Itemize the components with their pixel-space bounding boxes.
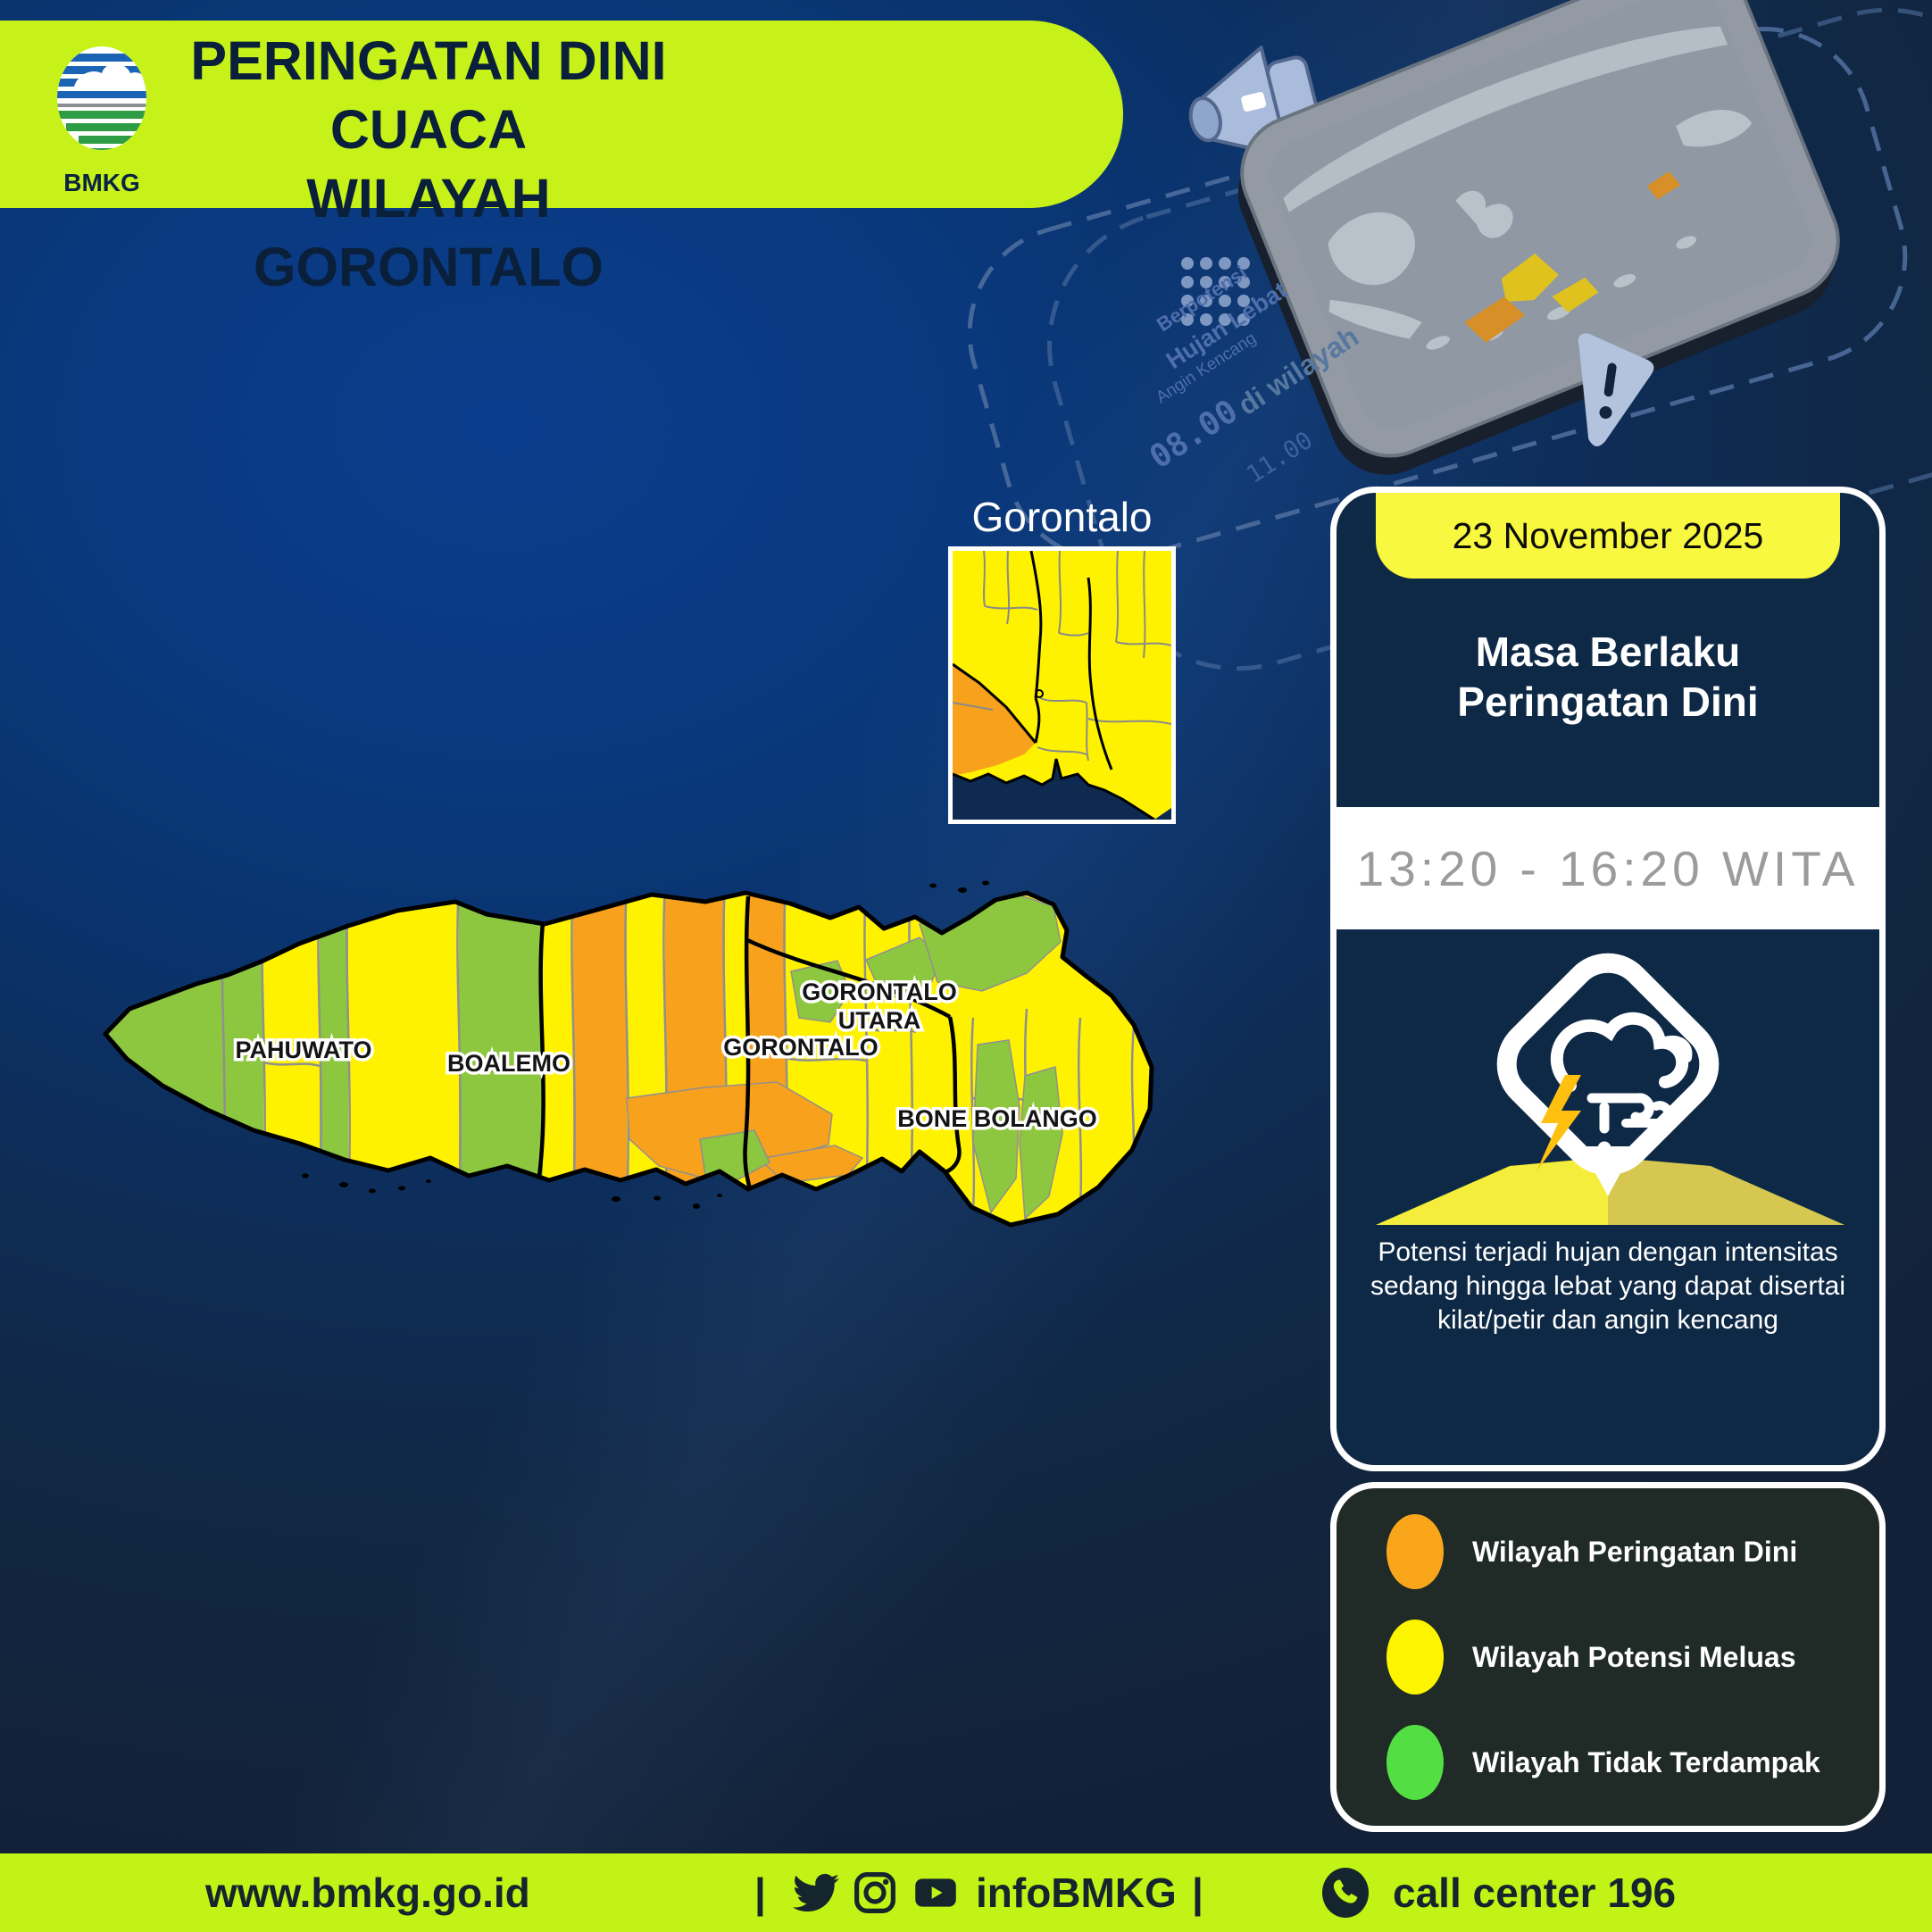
footer-separator: |	[754, 1853, 766, 1932]
validity-time: 13:20 - 16:20 WITA	[1330, 807, 1886, 929]
map-label-bone-bolango: BONE BOLANGO	[897, 1105, 1097, 1132]
legend-item-potential: Wilayah Potensi Meluas	[1385, 1619, 1861, 1695]
footer-bar: www.bmkg.go.id | infoBMKG | call cen	[0, 1853, 1932, 1932]
page-title-line2: WILAYAH GORONTALO	[152, 164, 705, 302]
phone-icon	[1320, 1867, 1371, 1919]
legend-swatch-unaffected	[1385, 1724, 1445, 1801]
poster: Berpotensi Hujan Lebat Angin Kencang di …	[0, 0, 1932, 1932]
inset-map-title: Gorontalo	[948, 493, 1176, 541]
date-badge: 23 November 2025	[1376, 493, 1840, 579]
warning-description: Potensi terjadi hujan dengan intensitas …	[1365, 1236, 1852, 1337]
legend-card: Wilayah Peringatan Dini Wilayah Potensi …	[1330, 1482, 1886, 1832]
social-handle[interactable]: infoBMKG	[976, 1853, 1177, 1932]
page-title-line1: PERINGATAN DINI CUACA	[152, 27, 705, 164]
instagram-icon[interactable]	[852, 1870, 898, 1916]
map-label-boalemo: BOALEMO	[447, 1050, 570, 1077]
website-link[interactable]: www.bmkg.go.id	[205, 1853, 530, 1932]
map-label-pahuwato: PAHUWATO	[236, 1037, 372, 1063]
warning-card: 23 November 2025 Masa Berlaku Peringatan…	[1330, 487, 1886, 1471]
storm-rain-wind-icon	[1358, 932, 1858, 1228]
legend-label: Wilayah Potensi Meluas	[1472, 1641, 1795, 1674]
map-label-gorontalo: GORONTALO	[723, 1034, 878, 1061]
validity-title: Masa Berlaku Peringatan Dini	[1337, 627, 1879, 727]
call-center-label[interactable]: call center 196	[1393, 1853, 1676, 1932]
legend-swatch-potential	[1385, 1619, 1445, 1695]
legend-label: Wilayah Tidak Terdampak	[1472, 1746, 1820, 1779]
legend-label: Wilayah Peringatan Dini	[1472, 1536, 1797, 1569]
map-label-gorontalo-utara: GORONTALO	[802, 978, 956, 1005]
legend-item-unaffected: Wilayah Tidak Terdampak	[1385, 1724, 1861, 1801]
youtube-icon[interactable]	[911, 1870, 961, 1916]
footer-separator: |	[1192, 1853, 1203, 1932]
legend-swatch-warning	[1385, 1513, 1445, 1590]
province-map: PAHUWATO BOALEMO GORONTALO GORONTALO UTA…	[80, 875, 1214, 1259]
twitter-icon[interactable]	[793, 1870, 839, 1916]
page-title: PERINGATAN DINI CUACA WILAYAH GORONTALO	[152, 27, 705, 302]
inset-map	[948, 546, 1176, 824]
map-label-gorontalo-utara: UTARA	[838, 1007, 920, 1034]
legend-item-warning: Wilayah Peringatan Dini	[1385, 1513, 1861, 1590]
bmkg-logo-text: BMKG	[63, 169, 140, 195]
